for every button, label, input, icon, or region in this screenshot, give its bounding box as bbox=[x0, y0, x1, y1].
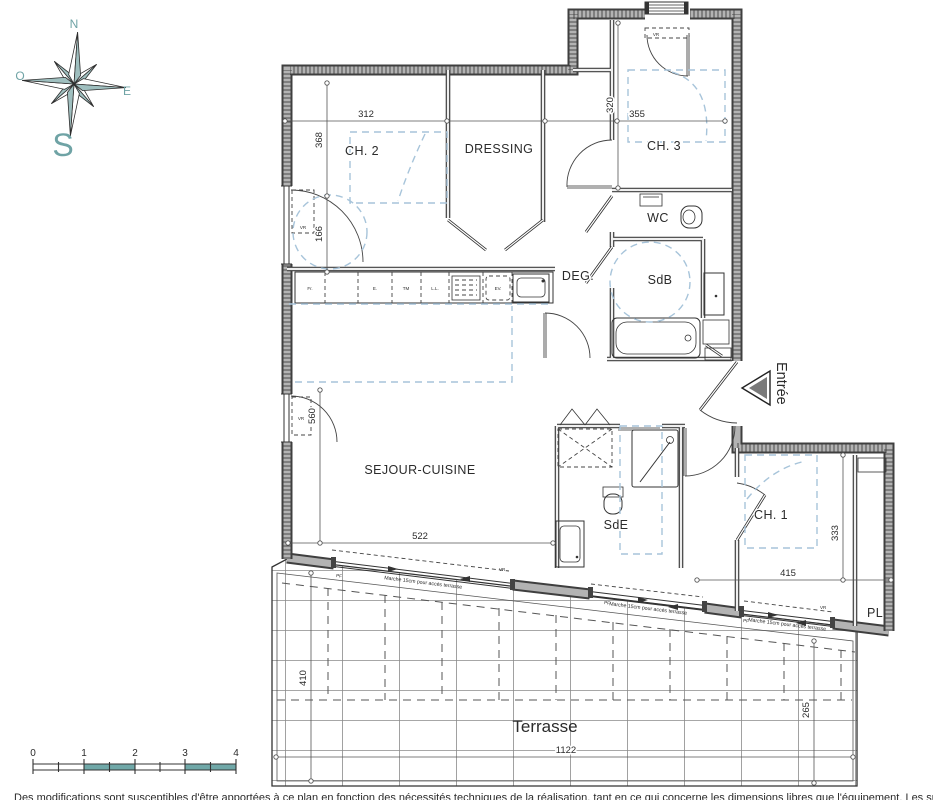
wall-hatch-ch1-right bbox=[884, 448, 894, 631]
compass-south-label: S bbox=[52, 127, 73, 163]
wall-hatch-left1 bbox=[282, 70, 292, 186]
fridge-label: Fr. bbox=[307, 286, 312, 291]
dim-560: 560 bbox=[307, 408, 318, 424]
dim-265: 265 bbox=[801, 702, 812, 718]
room-label-sdb: SdB bbox=[648, 273, 673, 287]
scale-tick-0: 0 bbox=[30, 748, 36, 759]
room-label-sde: SdE bbox=[604, 518, 629, 532]
scale-tick-1: 1 bbox=[81, 748, 87, 759]
vr-label-facade-2: VR bbox=[820, 605, 827, 610]
dim-368: 368 bbox=[314, 132, 325, 148]
scale-tick-4: 4 bbox=[233, 748, 239, 759]
room-label-ch1: CH. 1 bbox=[754, 508, 788, 522]
compass-west-label: O bbox=[15, 69, 24, 83]
wall-hatch-left2 bbox=[282, 264, 292, 394]
sink-label: EV. bbox=[495, 286, 502, 291]
vr-label-window-3: VR bbox=[653, 32, 660, 37]
dim-522: 522 bbox=[412, 531, 428, 542]
oven-label: E. bbox=[373, 286, 377, 291]
scale-bar: 0 1 2 3 4 bbox=[30, 748, 239, 774]
faucet-dot bbox=[542, 280, 545, 283]
room-label-deg: DEG. bbox=[562, 269, 594, 283]
vr-label-window-1: VR bbox=[300, 225, 307, 230]
room-label-pl: PL bbox=[867, 606, 883, 620]
pf-label-3: PF bbox=[743, 618, 750, 624]
wall-hatch-right bbox=[732, 14, 742, 361]
room-label-terrasse: Terrasse bbox=[512, 717, 577, 736]
room-label-ch3: CH. 3 bbox=[647, 139, 681, 153]
room-label-wc: WC bbox=[647, 211, 669, 225]
dim-1122: 1122 bbox=[556, 745, 576, 756]
window-top-cap-left bbox=[645, 2, 649, 14]
dim-312: 312 bbox=[358, 109, 374, 120]
dim-320: 320 bbox=[605, 97, 616, 113]
room-label-ch2: CH. 2 bbox=[345, 144, 379, 158]
pf-label-1: PF bbox=[336, 573, 343, 579]
washing-machine-label: L.L. bbox=[431, 286, 439, 291]
dim-415: 415 bbox=[780, 568, 796, 579]
scale-tick-2: 2 bbox=[132, 748, 138, 759]
wall-hatch-ch1-top bbox=[737, 443, 889, 453]
tm-label: TM bbox=[403, 286, 410, 291]
compass-star-icon bbox=[18, 28, 129, 139]
dim-410: 410 bbox=[298, 670, 309, 686]
dim-333: 333 bbox=[830, 525, 841, 541]
floor-plan-page: Marche 15cm pour accès terrasse Marche 1… bbox=[0, 0, 933, 800]
wall-hatch-bump-left bbox=[568, 14, 578, 70]
apartment-floor bbox=[287, 14, 889, 631]
room-label-sejour: SEJOUR-CUISINE bbox=[364, 463, 475, 477]
compass-east-label: E bbox=[123, 84, 131, 98]
dim-166: 166 bbox=[314, 226, 325, 242]
entrance-label: Entrée bbox=[773, 362, 789, 405]
vr-label-facade-1: VR bbox=[499, 567, 506, 572]
wall-hatch-bump-top1 bbox=[573, 9, 645, 19]
wall-hatch-top bbox=[290, 65, 571, 75]
compass-north-label: N bbox=[70, 17, 79, 31]
vr-label-window-2: VR bbox=[298, 416, 305, 421]
pf-label-2: PF bbox=[604, 600, 611, 606]
floor-plan-svg: Marche 15cm pour accès terrasse Marche 1… bbox=[0, 0, 933, 800]
window-top-bars bbox=[645, 5, 688, 11]
room-label-dressing: DRESSING bbox=[465, 142, 534, 156]
entrance-marker: Entrée bbox=[742, 362, 789, 405]
scale-tick-3: 3 bbox=[182, 748, 188, 759]
window-top-cap-right bbox=[684, 2, 688, 14]
wall-hatch-bump-top2 bbox=[690, 9, 737, 19]
compass-rose: N O E S bbox=[15, 17, 131, 163]
dim-355: 355 bbox=[629, 109, 645, 120]
disclaimer-text: Des modifications sont susceptibles d'êt… bbox=[14, 792, 933, 800]
